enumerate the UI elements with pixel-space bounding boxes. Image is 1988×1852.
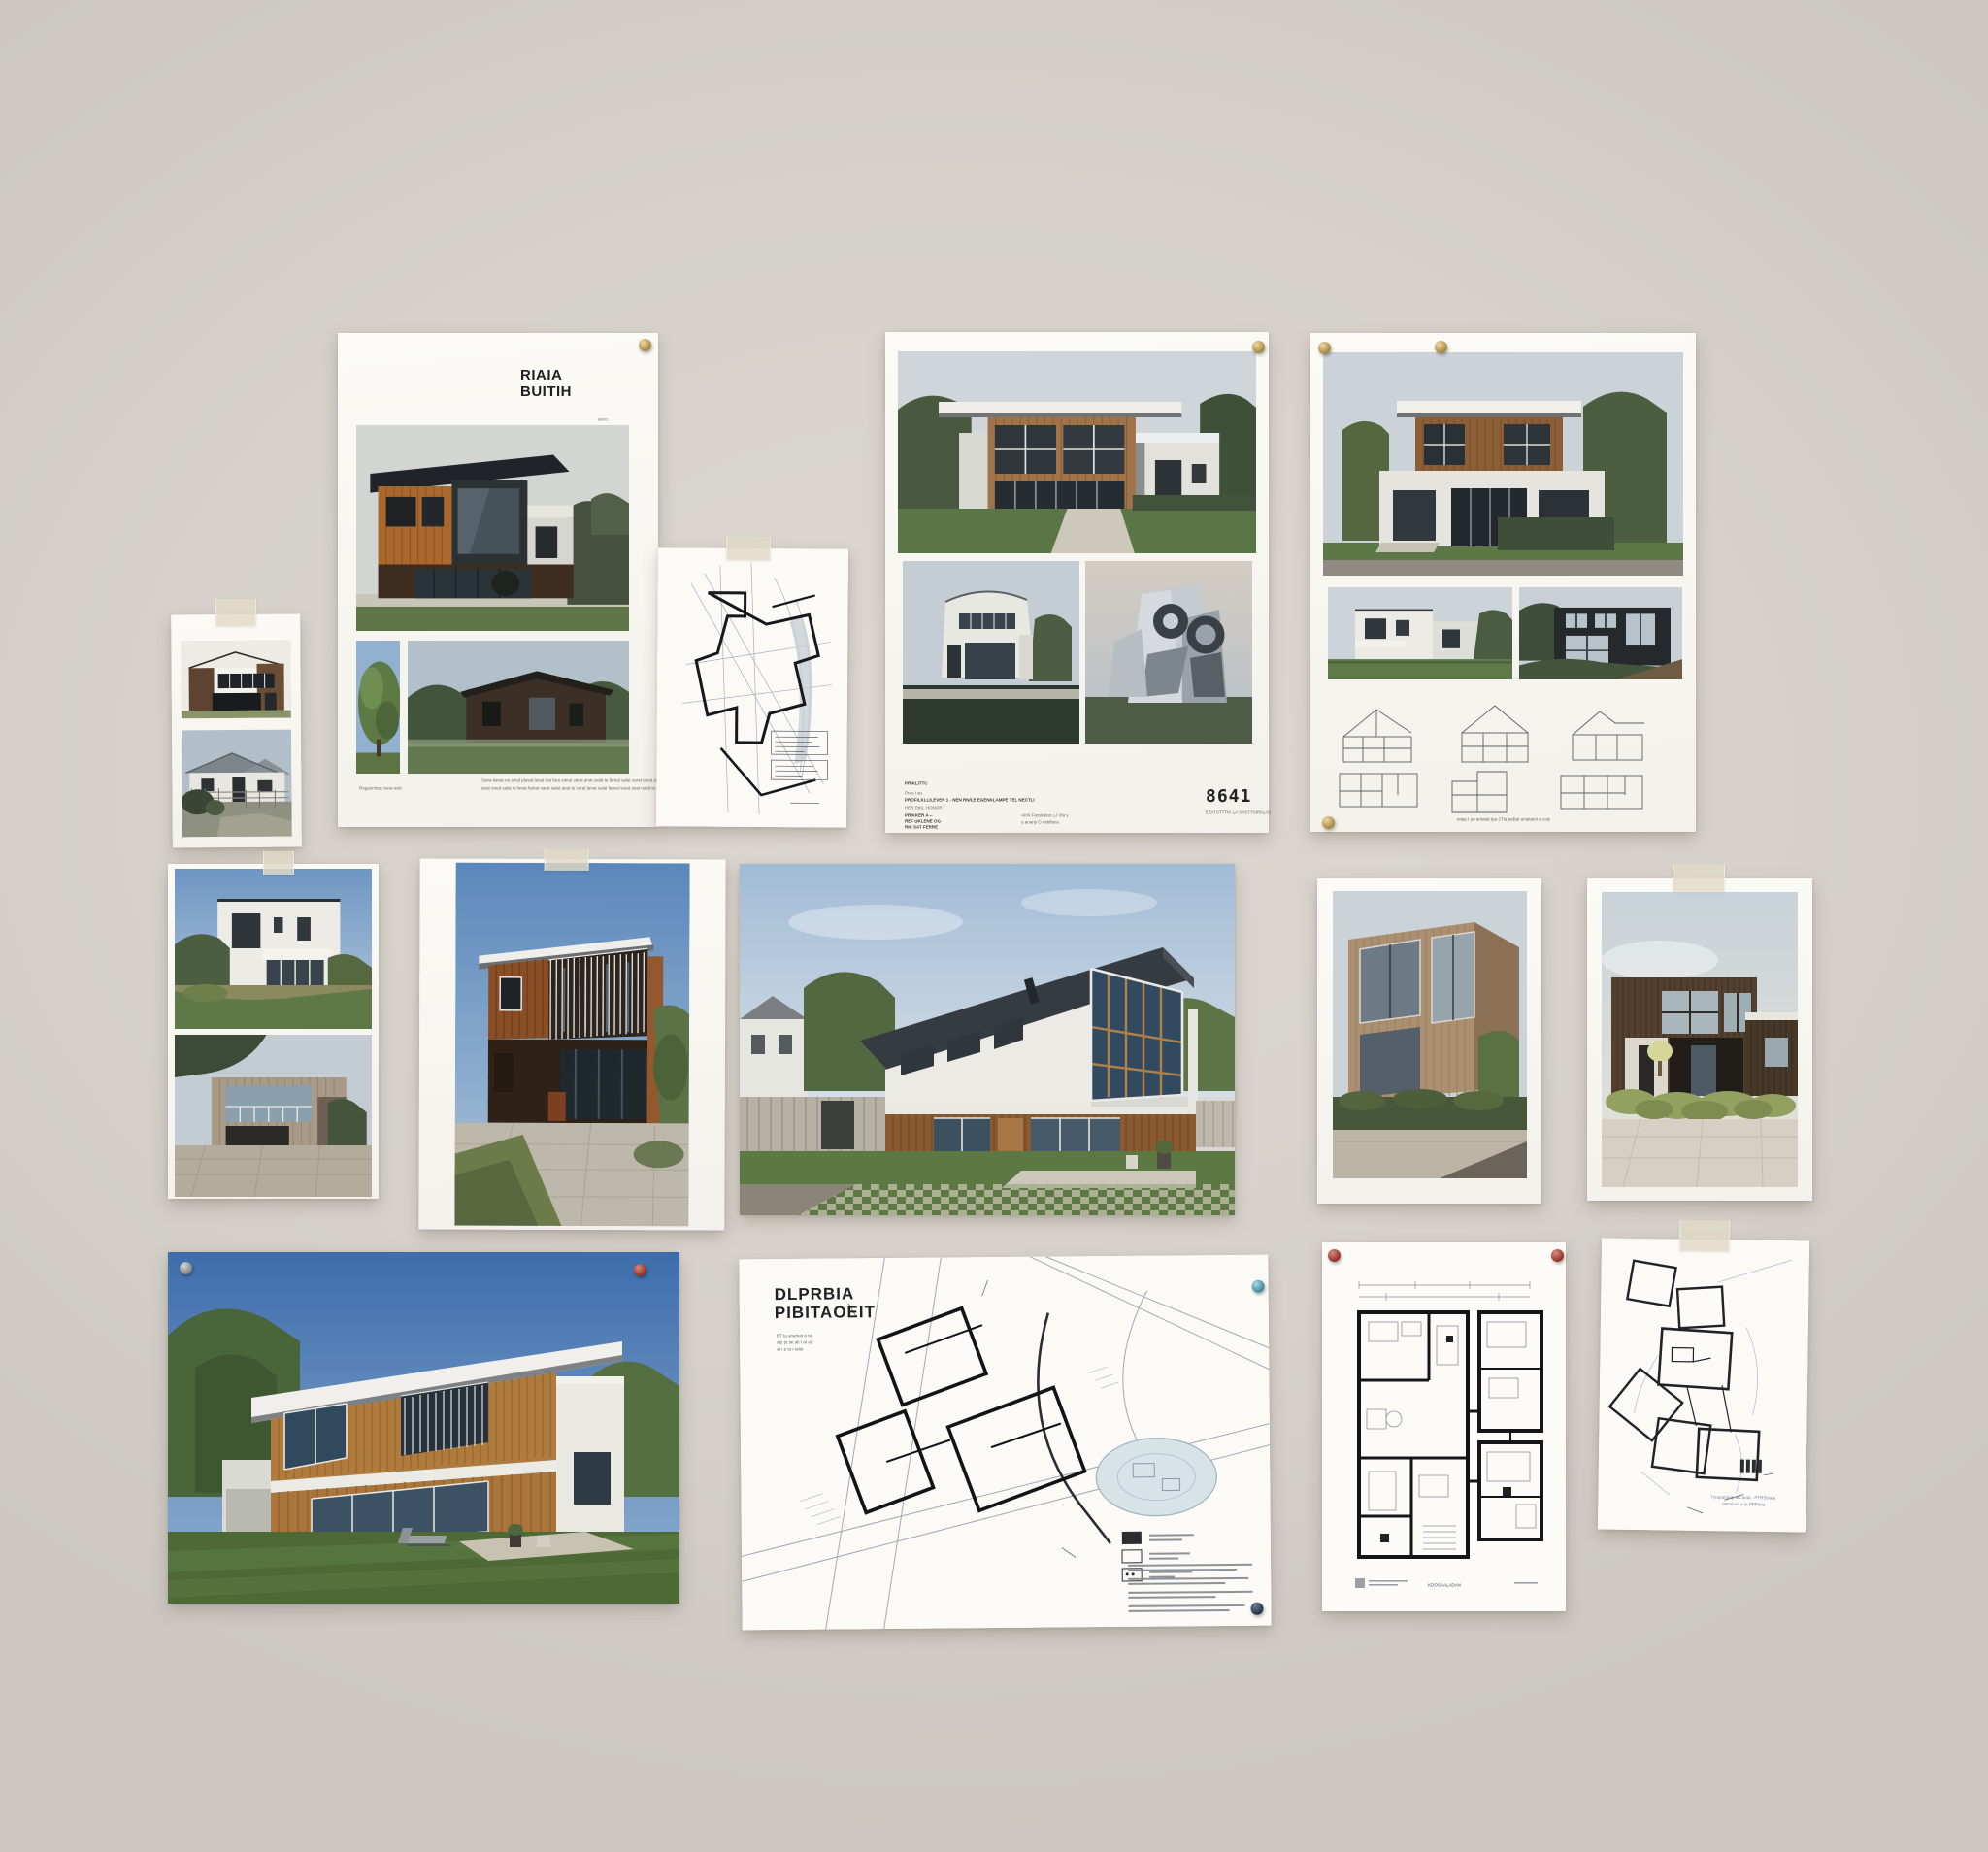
pushpin-red xyxy=(1551,1249,1564,1262)
portfolio-subtext-line1: anco xyxy=(598,416,608,423)
spec-col2-line1: AKN Fanskalan LJ Vla v. xyxy=(1021,812,1069,819)
wall-with-pinned-architecture-prints: RIAIA BUITIH anco cecxu xyxy=(0,0,1988,1852)
photo-tan-slat-house xyxy=(1333,891,1527,1178)
floor-plan-caption: KDOSAALADAN xyxy=(1428,1582,1461,1589)
illustration-site-sketch xyxy=(656,547,848,827)
illustration-white-cube-villa xyxy=(175,869,372,1029)
illustration-beige-cube-house xyxy=(175,1035,372,1197)
masking-tape xyxy=(545,849,589,871)
spec-line3: HER RIKL HONOR xyxy=(905,805,943,811)
massing-sketch-caption-line1: Tyroparatap tttv avta - PTRStvata xyxy=(1710,1494,1775,1501)
massing-sketch-caption-line2: tatttataat a ta PPPtata xyxy=(1722,1501,1765,1507)
spec-line1: Prau i au xyxy=(905,790,922,797)
poster-corten-house xyxy=(418,858,725,1230)
illustration-white-cubic-house xyxy=(1328,587,1512,679)
illustration-wood-dark-house xyxy=(356,425,629,631)
illustration-abstract-sculpture xyxy=(1085,561,1252,744)
illustration-wood-white-house xyxy=(898,351,1256,553)
photo-large-slanted-roof-house xyxy=(168,1252,679,1604)
photo-dark-charcoal-house xyxy=(1519,587,1682,679)
poster-portfolio: RIAIA BUITIH anco cecxu xyxy=(338,333,658,827)
site-plan-note-line2: atp pt tat alt t at a2 xyxy=(777,1339,812,1346)
sheet-site-plan: DLPRBIA PIBITAOEIT BT ta anamat a na atp… xyxy=(739,1255,1271,1631)
illustration-tan-slat-house xyxy=(1333,891,1527,1178)
masking-tape xyxy=(1679,1220,1730,1252)
illustration-elevation-house xyxy=(181,641,291,719)
pushpin-gold xyxy=(1318,342,1331,354)
photo-beige-cube-house xyxy=(175,1035,372,1197)
illustration-dark-charcoal-house xyxy=(1519,587,1682,679)
plans-caption: tatap t pa antatat tpa 2Tta aaBat antata… xyxy=(1456,816,1549,823)
pushpin-gold xyxy=(1252,341,1265,353)
pushpin-gold xyxy=(639,339,651,351)
poster-plans: tatap t pa antatat tpa 2Tta aaBat antata… xyxy=(1310,333,1696,832)
illustration-sections-and-plans xyxy=(1328,692,1677,813)
pushpin-grey xyxy=(180,1262,192,1274)
photo-dark-slat-house xyxy=(1602,892,1798,1187)
card-white-and-beige-cubes xyxy=(168,864,379,1199)
photo-main-wood-dark-house xyxy=(356,425,629,631)
pushpin-navy xyxy=(1250,1603,1263,1615)
photo-white-cube-villa xyxy=(175,869,372,1029)
site-plan-title-line2: PIBITAOEIT xyxy=(775,1304,876,1323)
photo-bungalow xyxy=(182,730,292,838)
photo-dark-barn-house xyxy=(408,641,629,774)
photo-tree-detail xyxy=(356,641,400,774)
spec-line6: RIK SAT FERRE xyxy=(905,824,938,831)
sheet-floor-plan: KDOSAALADAN xyxy=(1322,1242,1566,1611)
portfolio-title-line1: RIAIA xyxy=(520,368,572,384)
spec-number-caption: ETATSTTTIK LA SASTTSIRIILAS xyxy=(1206,810,1271,816)
site-plan-title: DLPRBIA PIBITAOEIT xyxy=(775,1285,876,1322)
sheet-massing-sketch: Tyroparatap tttv avta - PTRStvata tattta… xyxy=(1598,1239,1809,1533)
illustration-white-wood-villa xyxy=(1323,352,1683,576)
spec-line2: PROFILKLLILEVEN 1 - NEN RN/LE EGENKLAMPE… xyxy=(905,797,1035,804)
poster-dark-slat-house xyxy=(1587,878,1812,1201)
poster-tan-slat-house xyxy=(1317,878,1541,1204)
pushpin-red xyxy=(1328,1249,1341,1262)
illustration-bungalow xyxy=(182,730,292,838)
photo-white-cubic-house xyxy=(1328,587,1512,679)
illustration-large-gable-house xyxy=(740,864,1235,1215)
photo-white-wood-villa xyxy=(1323,352,1683,576)
photo-corten-house xyxy=(454,863,689,1227)
pushpin-gold xyxy=(1435,341,1447,353)
masking-tape xyxy=(726,537,771,560)
masking-tape xyxy=(263,851,294,875)
illustration-dark-slat-house xyxy=(1602,892,1798,1187)
portfolio-title-line2: BUITIH xyxy=(520,384,572,401)
masking-tape xyxy=(215,599,256,626)
illustration-corten-house xyxy=(454,863,689,1227)
portfolio-title: RIAIA BUITIH xyxy=(520,368,572,400)
illustration-slanted-roof-house xyxy=(168,1252,679,1604)
sheet-site-sketch xyxy=(656,547,848,827)
site-plan-note-line3: at t p ta t talat xyxy=(777,1346,803,1353)
photo-abstract-sculpture xyxy=(1085,561,1252,744)
portfolio-fineprint-line1: Sana kanat na antal plasat lanat trat fa… xyxy=(481,777,673,784)
photo-white-curved-house xyxy=(903,561,1079,744)
plan-drawings-grid xyxy=(1328,692,1677,813)
photo-large-gable-house xyxy=(740,864,1235,1215)
pushpin-blue xyxy=(1252,1280,1265,1293)
portfolio-fineprint-line2: anat varat salat te lanat famat varat sa… xyxy=(481,785,666,792)
illustration-tree xyxy=(356,641,400,774)
masking-tape xyxy=(1673,864,1725,891)
spec-number: 8641 xyxy=(1206,786,1251,807)
card-two-small-houses xyxy=(171,614,302,848)
illustration-white-curved-house xyxy=(903,561,1079,744)
photo-wood-white-house xyxy=(898,351,1256,553)
pushpin-red xyxy=(634,1264,646,1276)
site-plan-title-line1: DLPRBIA xyxy=(775,1285,876,1305)
spec-col2-line2: u anany O nekflanu xyxy=(1021,819,1059,826)
poster-spec-sheet: PRIKLITTC Prau i au PROFILKLLILEVEN 1 - … xyxy=(885,332,1269,833)
spec-heading: PRIKLITTC xyxy=(905,780,928,787)
photo-elevation-house xyxy=(181,641,291,719)
illustration-dark-barn-house xyxy=(408,641,629,774)
pushpin-gold xyxy=(1322,816,1335,829)
site-plan-note-line1: BT ta anamat a na xyxy=(777,1333,812,1339)
illustration-massing-sketch xyxy=(1598,1239,1809,1533)
illustration-floor-plan xyxy=(1322,1242,1566,1611)
portfolio-caption: Rogaernteg vana-sstv xyxy=(359,785,402,792)
